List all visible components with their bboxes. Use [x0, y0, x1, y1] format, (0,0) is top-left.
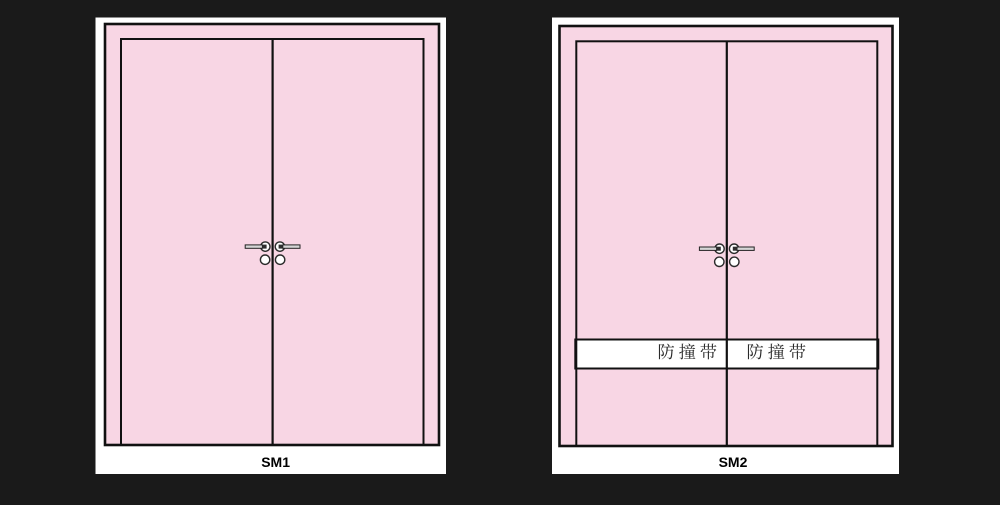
svg-text:SM1: SM1 [261, 454, 290, 470]
svg-text:SM2: SM2 [719, 454, 748, 470]
